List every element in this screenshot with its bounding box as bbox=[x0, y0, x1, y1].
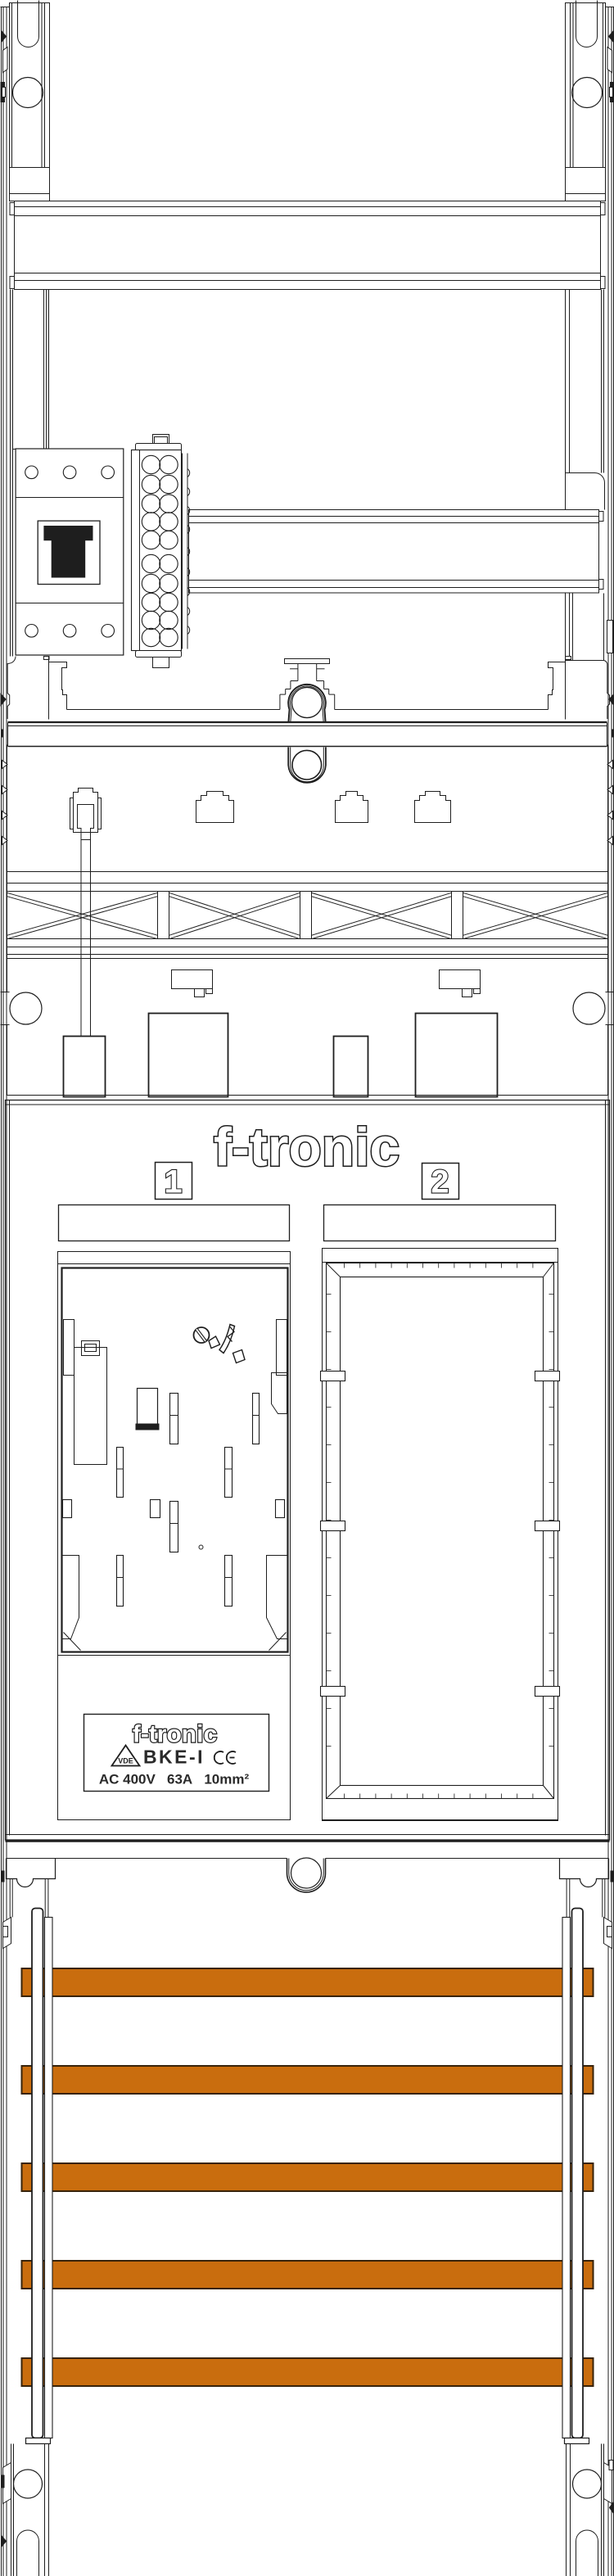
svg-text:1: 1 bbox=[164, 1164, 182, 1200]
svg-text:2: 2 bbox=[431, 1164, 449, 1200]
svg-text:AC 400V 63A 10mm²: AC 400V 63A 10mm² bbox=[99, 1772, 250, 1787]
svg-text:f-tronic: f-tronic bbox=[214, 1117, 400, 1177]
svg-text:VDE: VDE bbox=[118, 1757, 133, 1765]
svg-text:BKE-I: BKE-I bbox=[143, 1747, 205, 1768]
svg-text:f-tronic: f-tronic bbox=[133, 1721, 217, 1748]
